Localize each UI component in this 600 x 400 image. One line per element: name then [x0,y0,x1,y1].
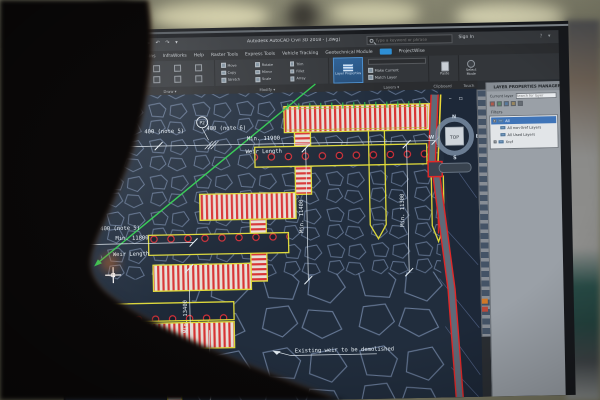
p2-bubble: P2 [199,120,205,126]
note5-left-text: 400 (note 5) [100,226,140,233]
layer-search-input[interactable] [516,93,555,98]
toolbar-icon-red[interactable] [482,307,488,312]
toolbar-icon-orange[interactable] [482,299,488,304]
layer-filter-tree: All All non-Xref Layers All Used Layers … [489,114,559,149]
note6-text: 400 (note 6) [206,125,246,132]
viewcube-top-label[interactable]: TOP [449,135,459,141]
delete-layer-icon[interactable] [504,101,509,106]
tree-expander-icon[interactable] [493,119,496,122]
min-11300-text: Min. 11300 [400,194,407,227]
minimize-viewport-icon[interactable]: – [449,95,452,102]
folder-icon [498,119,503,123]
note5-top-text: 400 (note 5) [144,129,184,136]
layer-filter-item[interactable]: Xref [492,137,557,145]
folder-icon [500,133,505,137]
tree-expander-icon[interactable] [494,140,497,143]
weir-length-top-text: Weir Length [245,149,282,156]
new-layer-icon[interactable] [490,101,495,106]
min-13400-text: Min. 13400 [183,300,190,333]
palette-title[interactable]: LAYER PROPERTIES MANAGER [486,81,559,91]
viewcube-north[interactable]: N [452,114,456,120]
min-11900-text: Min. 11900 [247,136,280,143]
layer-properties-manager: LAYER PROPERTIES MANAGER Current layer F… [485,81,565,396]
folder-icon [500,126,505,130]
wcs-dropdown[interactable] [439,163,471,173]
viewcube-south[interactable]: S [453,155,457,161]
set-current-icon[interactable] [511,101,516,106]
min-6100-text: Min. 6100 [203,353,210,383]
layer-search-box[interactable] [515,92,556,99]
viewcube-west[interactable]: W [429,135,435,141]
refresh-icon[interactable] [518,101,523,106]
min-11400-text: Min. 11400 [299,200,306,233]
current-layer-label: Current layer [490,94,514,98]
photo-scene: ▪ ▸ ↶ ↷ ▾ Autodesk AutoCAD Civil 3D 2018… [0,0,600,400]
restore-viewport-icon[interactable]: ▫ [459,95,463,102]
monitor: ▪ ▸ ↶ ↷ ▾ Autodesk AutoCAD Civil 3D 2018… [56,21,575,400]
min-11800-text: Min. 11800 [115,235,148,242]
bokeh-blob [150,2,270,30]
bokeh-blob [330,0,420,26]
folder-icon [499,140,504,144]
weir-length-left-text: Weir Length [113,251,150,258]
new-vp-layer-icon[interactable] [497,101,502,106]
